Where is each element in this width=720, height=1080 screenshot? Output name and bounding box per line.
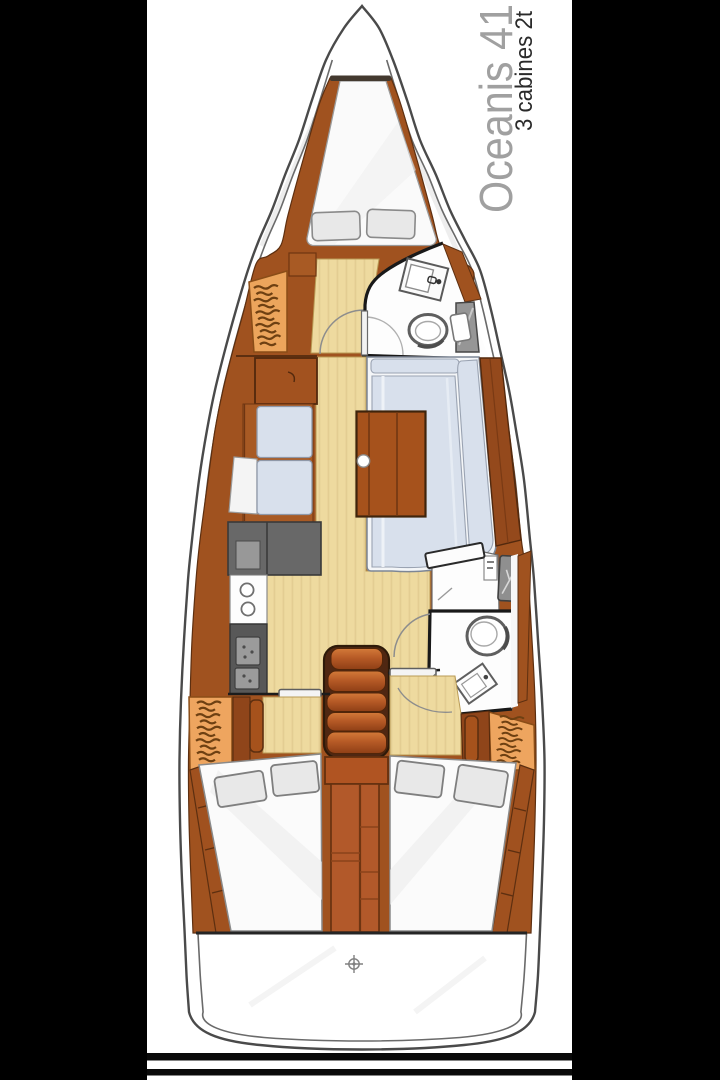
svg-text:3 cabines 2t: 3 cabines 2t [511, 11, 538, 131]
